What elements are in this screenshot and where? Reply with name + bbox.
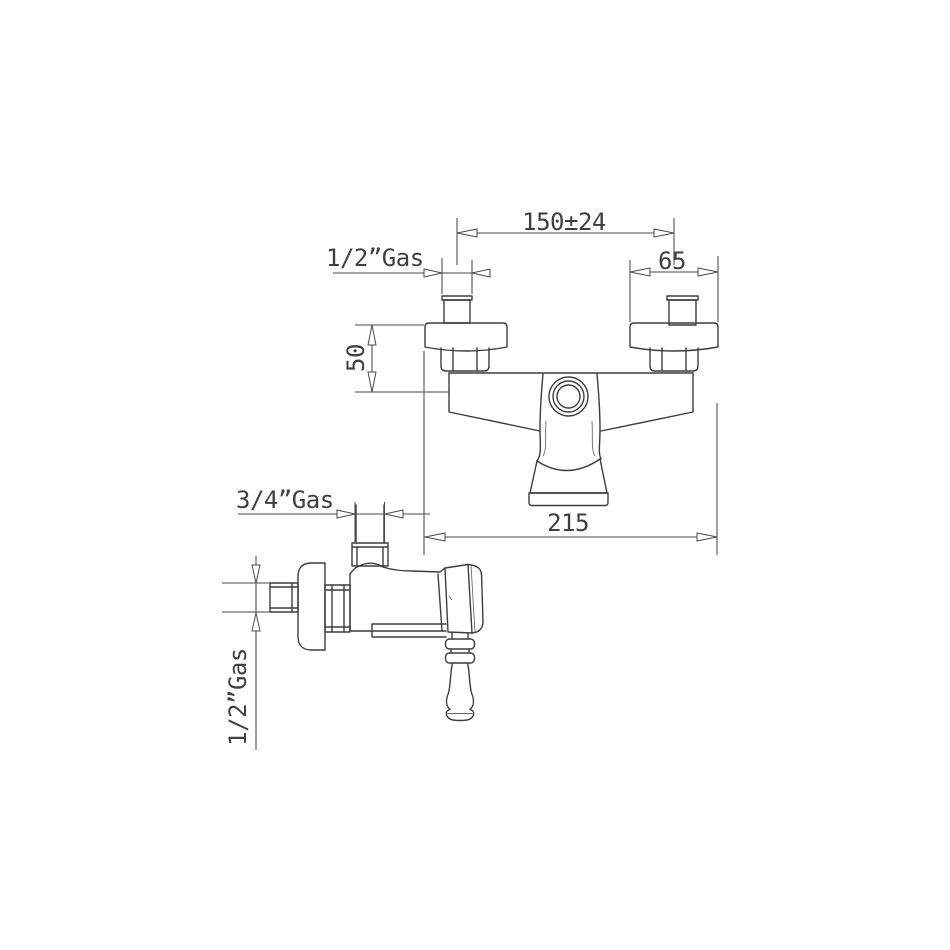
dim-flange-width: 65 bbox=[630, 247, 718, 322]
dim-label-flange-width: 65 bbox=[658, 247, 686, 275]
dim-label-overall-width: 215 bbox=[547, 509, 589, 537]
dim-drop-height: 50 bbox=[342, 325, 449, 392]
side-hex-nut bbox=[325, 585, 350, 632]
dim-center-distance: 150±24 bbox=[457, 208, 674, 265]
side-end-cap bbox=[440, 565, 483, 634]
side-body bbox=[350, 563, 446, 637]
front-cartridge-circles bbox=[549, 377, 588, 416]
technical-drawing-canvas: 150±24 1/2”Gas 65 50 215 3/4”G bbox=[0, 0, 950, 950]
front-right-flange bbox=[630, 323, 718, 351]
side-lever-handle bbox=[446, 633, 475, 721]
side-wall-nipple bbox=[270, 583, 298, 612]
dim-label-inlet-thread-front: 1/2”Gas bbox=[326, 244, 424, 272]
dim-label-outlet-thread-side: 3/4”Gas bbox=[236, 486, 334, 514]
front-body bbox=[449, 373, 693, 461]
front-spout bbox=[529, 459, 608, 506]
front-left-pipe bbox=[442, 296, 472, 323]
front-view bbox=[425, 296, 718, 506]
dim-label-center-distance: 150±24 bbox=[522, 208, 606, 236]
dim-label-inlet-thread-side: 1/2”Gas bbox=[224, 648, 252, 746]
dim-outlet-thread-side: 3/4”Gas bbox=[236, 486, 430, 543]
dim-inlet-thread-front: 1/2”Gas bbox=[326, 244, 490, 294]
dim-inlet-thread-side: 1/2”Gas bbox=[222, 556, 270, 750]
front-left-flange bbox=[425, 323, 507, 351]
front-right-pipe bbox=[667, 296, 698, 325]
faucet-dimension-drawing: 150±24 1/2”Gas 65 50 215 3/4”G bbox=[0, 0, 950, 950]
dim-label-drop-height: 50 bbox=[342, 344, 370, 372]
side-escutcheon bbox=[298, 563, 325, 650]
